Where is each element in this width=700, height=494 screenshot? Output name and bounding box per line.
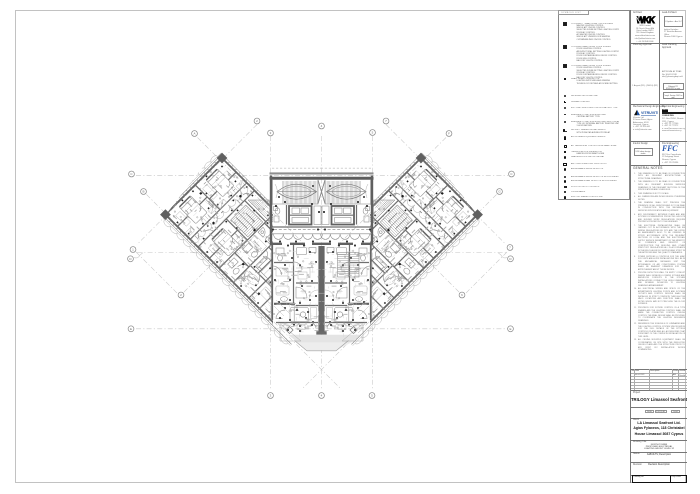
svg-text:E: E — [130, 327, 132, 331]
svg-text:A: A — [193, 132, 195, 136]
svg-text:WKK: WKK — [636, 14, 656, 24]
svg-text:F: F — [448, 132, 450, 136]
svg-text:B: B — [142, 190, 144, 194]
svg-text:E: E — [509, 327, 511, 331]
svg-text:VITRUVITE: VITRUVITE — [641, 111, 658, 115]
